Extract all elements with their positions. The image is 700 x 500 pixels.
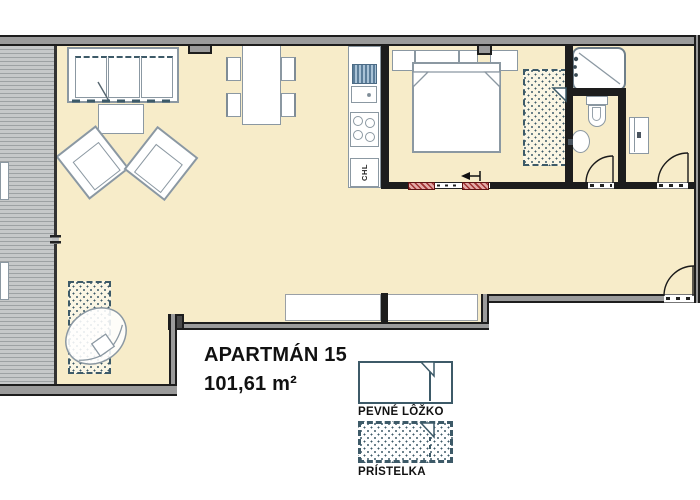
dining-chair bbox=[281, 93, 296, 117]
dining-chair bbox=[226, 93, 241, 117]
kitchen-bedroom-wall bbox=[381, 46, 389, 189]
fridge: CHL bbox=[350, 158, 379, 187]
terrace-decking bbox=[0, 46, 55, 386]
corridor-wall bbox=[389, 182, 408, 189]
exterior-wall-bottom-mid bbox=[172, 322, 489, 330]
floor-plan: CHL PEVNÉ LÔŽ bbox=[0, 0, 700, 500]
dining-chair bbox=[226, 57, 241, 81]
entry-door-opening bbox=[664, 294, 694, 303]
wall-pillar bbox=[188, 46, 212, 54]
burner bbox=[365, 132, 375, 142]
corridor-wall bbox=[614, 182, 657, 189]
wall-pillar bbox=[477, 46, 492, 55]
legend-extra-bed-label: PRÍSTELKA bbox=[358, 466, 426, 478]
sofa-seat-cushion bbox=[75, 56, 107, 98]
burner bbox=[365, 118, 375, 128]
wardrobe-divider-wall bbox=[381, 293, 388, 322]
bedroom-extra-bed bbox=[523, 69, 567, 166]
corridor-wall bbox=[490, 182, 588, 189]
shower-room-wall bbox=[565, 88, 626, 96]
hallway-floor bbox=[55, 190, 694, 298]
living-room-extra-bed bbox=[68, 281, 111, 374]
dish-rack bbox=[352, 64, 377, 84]
legend-extra-bed-icon bbox=[358, 421, 453, 463]
burner bbox=[353, 130, 363, 140]
exterior-wall-step-left bbox=[169, 314, 177, 388]
coffee-table bbox=[98, 104, 144, 134]
exterior-wall-right bbox=[694, 35, 700, 303]
shower bbox=[572, 47, 626, 91]
bedroom-right-wall bbox=[565, 46, 573, 189]
wc-right-wall bbox=[618, 96, 626, 189]
plan-area: 101,61 m² bbox=[204, 370, 364, 399]
built-in-wardrobe bbox=[285, 294, 381, 321]
toilet-bowl-inner bbox=[592, 107, 601, 121]
kitchen-sink bbox=[351, 86, 377, 103]
bathroom-cabinet bbox=[629, 117, 649, 154]
toilet-bowl bbox=[588, 105, 606, 127]
legend-fixed-bed-icon bbox=[358, 361, 453, 404]
fridge-label: CHL bbox=[360, 164, 369, 181]
terrace-planter bbox=[0, 262, 9, 300]
double-bed bbox=[412, 62, 501, 153]
cabinet-handle bbox=[637, 132, 641, 138]
exterior-wall-top bbox=[0, 35, 700, 46]
washbasin bbox=[571, 130, 590, 153]
stove bbox=[350, 112, 379, 147]
bathroom-door-opening bbox=[657, 182, 688, 189]
glass-wall-joint bbox=[52, 235, 59, 244]
terrace-planter bbox=[0, 162, 9, 200]
sink-drain bbox=[367, 93, 371, 97]
exterior-wall-bottom-right bbox=[488, 294, 664, 303]
terrace-glass-wall bbox=[54, 46, 57, 384]
plan-title: APARTMÁN 15 bbox=[204, 341, 364, 370]
sliding-door-panel bbox=[408, 182, 435, 190]
toilet-tank bbox=[586, 96, 608, 105]
sliding-door-panel bbox=[462, 182, 489, 190]
wc-door-opening bbox=[588, 182, 614, 189]
built-in-wardrobe bbox=[387, 294, 478, 321]
exterior-wall-bottom-left bbox=[0, 384, 177, 396]
legend-pillow-divider bbox=[429, 363, 431, 401]
sofa-bed bbox=[67, 47, 179, 103]
legend-fixed-bed-label: PEVNÉ LÔŽKO bbox=[358, 406, 444, 418]
dining-table bbox=[242, 45, 281, 125]
plan-title-block: APARTMÁN 15 101,61 m² bbox=[204, 341, 364, 399]
burner bbox=[353, 116, 363, 126]
cabinet-door-line bbox=[634, 118, 635, 152]
dining-chair bbox=[281, 57, 296, 81]
sofa-seat-cushion bbox=[108, 56, 140, 98]
sofa-seat-cushion bbox=[141, 56, 173, 98]
corridor-wall bbox=[688, 182, 694, 189]
